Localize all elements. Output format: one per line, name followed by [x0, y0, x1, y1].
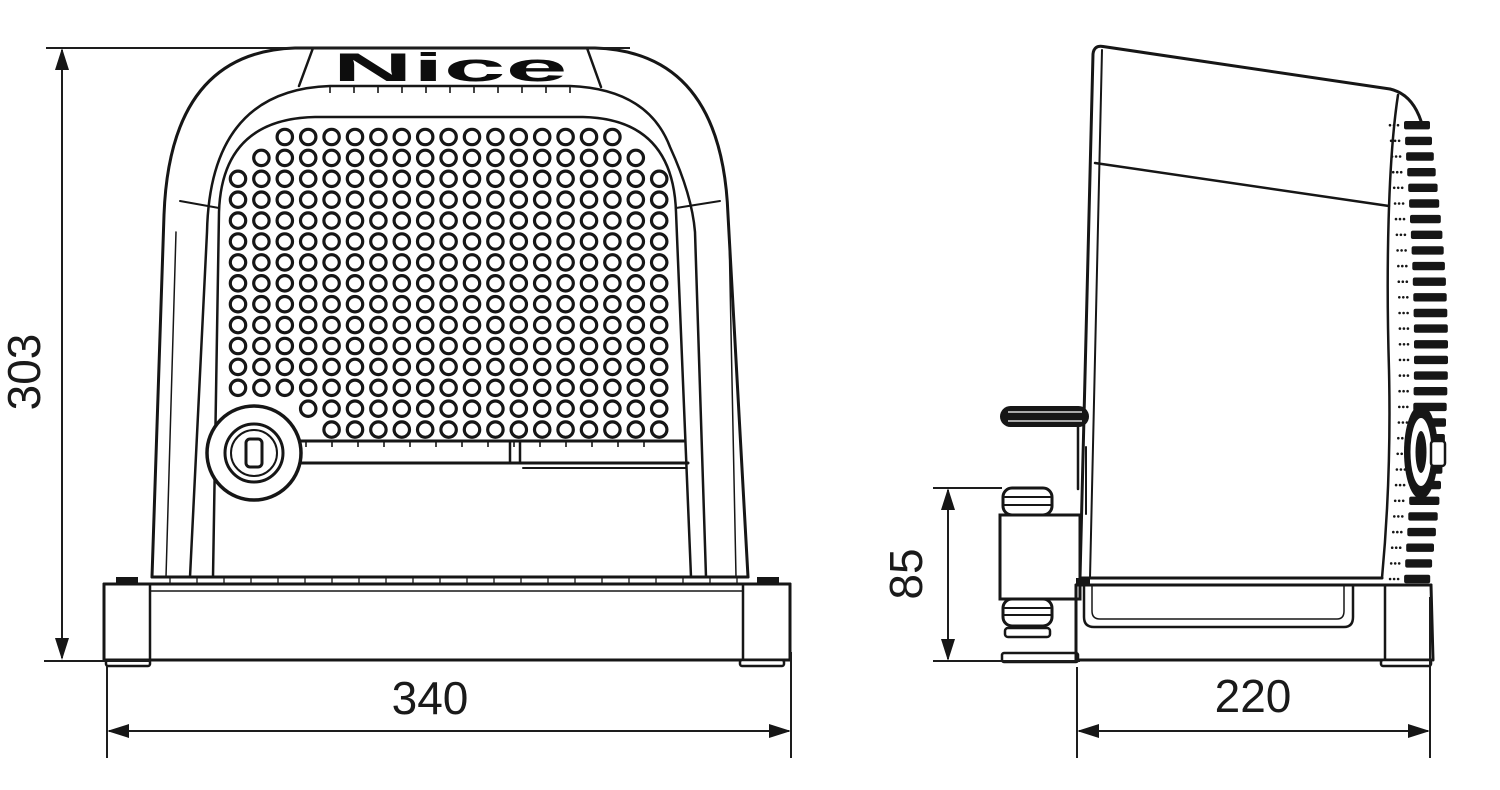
- arrow-up-icon: [55, 48, 69, 70]
- technical-drawing-page: Nice: [0, 0, 1500, 790]
- pinion-gear: [1000, 488, 1080, 662]
- cooling-fins: [1389, 121, 1448, 583]
- vent-grille: [213, 117, 691, 577]
- side-body-shell: [1080, 46, 1421, 578]
- base-recess-outer: [1084, 585, 1353, 627]
- pinion-top-gear: [1003, 488, 1052, 515]
- gate-motor-dimension-drawing: Nice: [0, 0, 1500, 790]
- arrow-left-icon: [107, 724, 129, 738]
- pinion-housing: [1000, 515, 1080, 599]
- arrow-right-icon: [769, 724, 791, 738]
- gasket-tab-right: [757, 577, 779, 585]
- keyhole-icon: [246, 439, 262, 467]
- lid-seam: [1095, 163, 1389, 206]
- brand-logo: Nice: [333, 46, 568, 90]
- dim-width-label: 340: [392, 672, 469, 724]
- arrow-left-icon: [1077, 724, 1099, 738]
- dim-pinion-label: 85: [880, 548, 932, 599]
- dimension-depth: 220: [1077, 597, 1430, 758]
- side-view: [1000, 46, 1448, 666]
- dim-depth-label: 220: [1215, 670, 1292, 722]
- arrow-down-icon: [55, 638, 69, 660]
- gasket-tab-left: [116, 577, 138, 585]
- dimension-width: 340: [107, 652, 791, 758]
- side-foot-pad: [1381, 660, 1431, 666]
- bolt-shaft: [1000, 406, 1089, 427]
- arrow-up-icon: [941, 488, 955, 510]
- front-view: Nice: [104, 46, 790, 666]
- foot-pad-right: [740, 660, 784, 666]
- release-handle: [296, 441, 688, 468]
- arrow-right-icon: [1408, 724, 1430, 738]
- lock-cylinder-tab: [1431, 441, 1445, 466]
- side-base: [1076, 578, 1433, 666]
- brand-logo-plate: Nice: [299, 46, 601, 90]
- dim-height-label: 303: [0, 334, 50, 411]
- arrow-down-icon: [941, 639, 955, 661]
- pinion-bottom-gear: [1003, 599, 1052, 626]
- base-recess-inner: [1092, 585, 1344, 619]
- key-lock: [207, 406, 301, 500]
- vent-grille-dots: [230, 129, 667, 437]
- front-base: [104, 577, 790, 666]
